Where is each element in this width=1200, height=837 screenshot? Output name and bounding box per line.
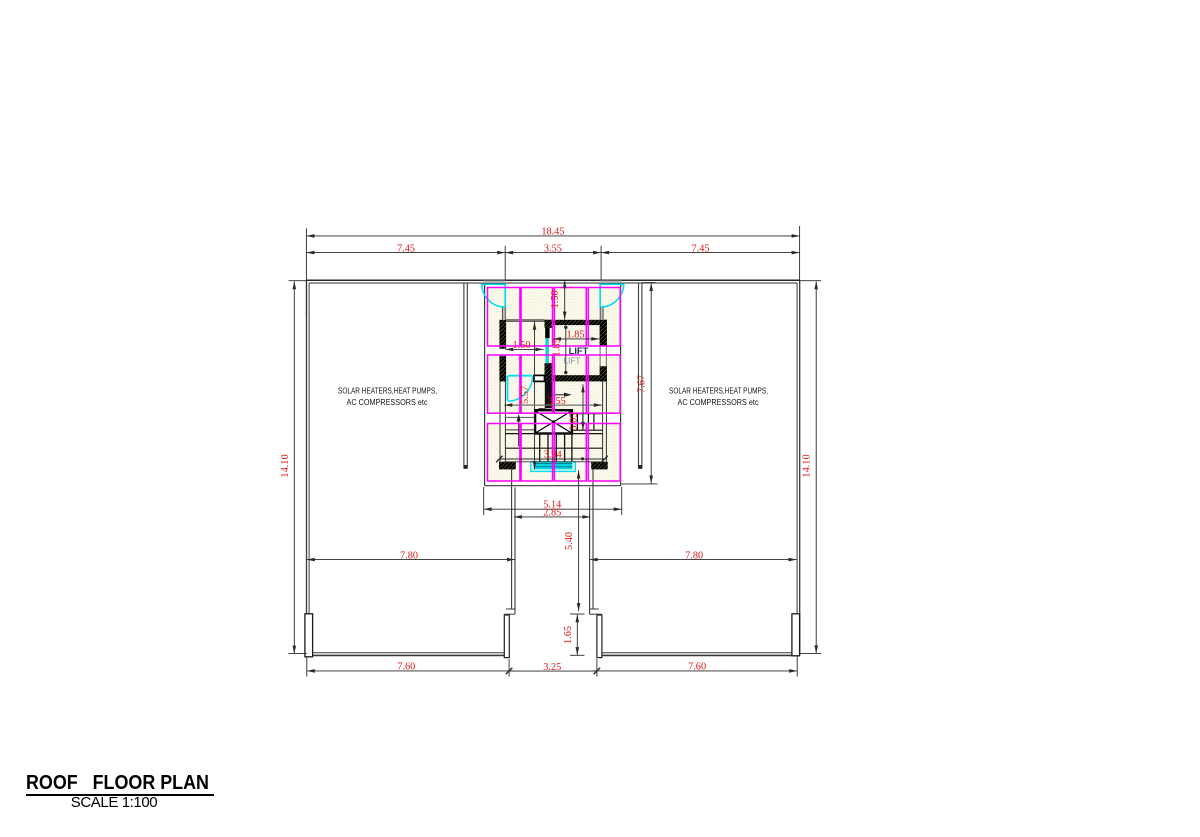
svg-text:LIFT: LIFT <box>564 356 581 365</box>
svg-text:14.10: 14.10 <box>280 454 291 477</box>
svg-text:7.45: 7.45 <box>397 243 415 254</box>
svg-text:18.45: 18.45 <box>541 227 564 238</box>
svg-text:3.05: 3.05 <box>569 413 580 431</box>
svg-text:2.85: 2.85 <box>543 508 561 519</box>
svg-text:SOLAR HEATERS,HEAT PUMPS,: SOLAR HEATERS,HEAT PUMPS, <box>338 386 437 396</box>
svg-text:1.65: 1.65 <box>563 626 574 644</box>
svg-text:7.80: 7.80 <box>400 550 418 561</box>
svg-text:3.25: 3.25 <box>543 662 561 673</box>
svg-text:SOLAR HEATERS,HEAT PUMPS,: SOLAR HEATERS,HEAT PUMPS, <box>669 386 768 396</box>
svg-text:3.94: 3.94 <box>544 450 562 461</box>
svg-text:14.10: 14.10 <box>802 454 813 477</box>
svg-text:7.60: 7.60 <box>688 662 706 673</box>
svg-text:1.85: 1.85 <box>551 338 562 356</box>
svg-text:7.80: 7.80 <box>685 550 703 561</box>
svg-text:AC COMPRESSORS etc: AC COMPRESSORS etc <box>347 397 429 407</box>
svg-text:5.57: 5.57 <box>520 386 531 404</box>
svg-text:AC COMPRESSORS etc: AC COMPRESSORS etc <box>678 397 760 407</box>
svg-text:3.55: 3.55 <box>548 396 566 407</box>
svg-text:1.50: 1.50 <box>512 340 530 351</box>
svg-text:3.55: 3.55 <box>544 243 562 254</box>
svg-text:7.67: 7.67 <box>637 375 648 393</box>
svg-text:5.40: 5.40 <box>564 532 575 550</box>
svg-text:7.45: 7.45 <box>691 243 709 254</box>
svg-text:1.85: 1.85 <box>566 330 584 341</box>
svg-text:7.60: 7.60 <box>397 662 415 673</box>
svg-text:LIFT: LIFT <box>569 345 589 356</box>
svg-text:1.50: 1.50 <box>550 290 561 308</box>
